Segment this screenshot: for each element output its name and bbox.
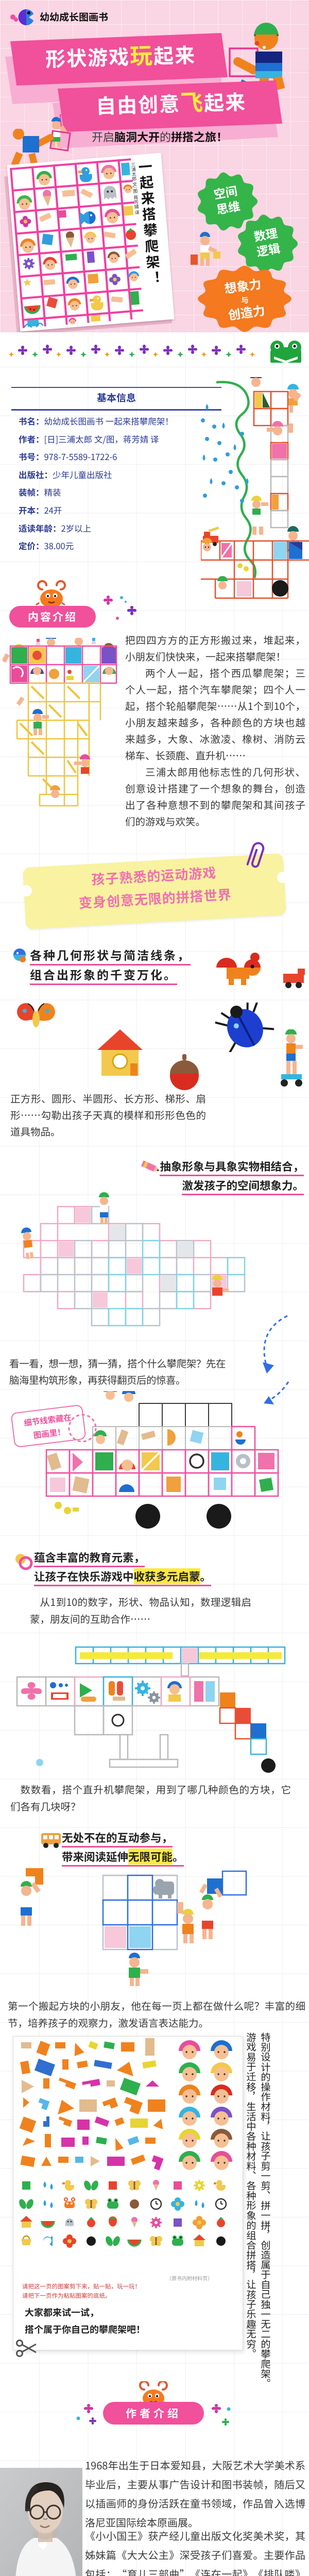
svg-text:（原书内附材料页）: （原书内附材料页） bbox=[166, 2274, 213, 2282]
svg-text:请把下一页作为粘贴图案的底纸。: 请把下一页作为粘贴图案的底纸。 bbox=[22, 2292, 111, 2300]
svg-text:请把这一页的图案剪下来，贴一贴，玩一玩！: 请把这一页的图案剪下来，贴一贴，玩一玩！ bbox=[22, 2282, 141, 2291]
